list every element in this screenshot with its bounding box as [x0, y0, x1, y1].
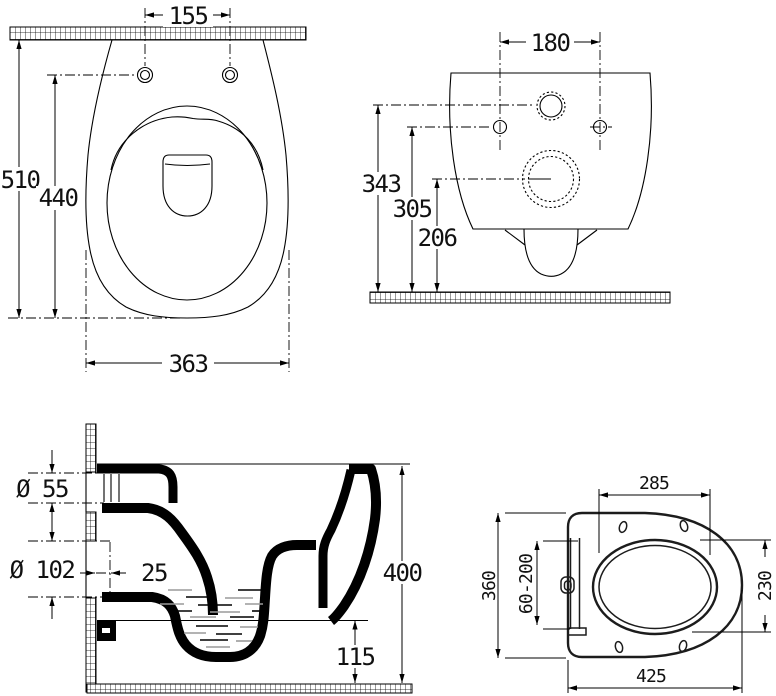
- seat-opening-inner: [599, 546, 711, 629]
- flush-rim-edge: [111, 117, 263, 170]
- dim-outlet-diameter: Ø 102: [10, 556, 75, 584]
- dim-rear-outlet-height: 206: [418, 224, 457, 252]
- dim-top-bowl-width: 363: [169, 350, 208, 378]
- dim-top-holes-to-front: 440: [39, 184, 78, 212]
- dim-seat-width: 360: [479, 571, 500, 601]
- ceramic-section: [97, 469, 376, 657]
- floor-hatch-section: [87, 684, 412, 693]
- dim-rim-height: 400: [383, 559, 422, 587]
- technical-drawing-page: 155 510 440 363: [0, 0, 776, 696]
- wall-bracket: [97, 621, 116, 641]
- drain-water-edge: [165, 164, 210, 166]
- side-section-view: Ø 55 Ø 102 25 400 115: [9, 424, 426, 693]
- dim-hinge-adjust-range: 60-200: [516, 554, 537, 614]
- dim-top-hole-spacing: 155: [169, 2, 208, 30]
- toilet-dimension-drawing: 155 510 440 363: [0, 0, 776, 696]
- seat-opening-outer: [593, 540, 717, 634]
- wall-hatch: [10, 27, 306, 40]
- dim-underside-height: 115: [336, 643, 375, 671]
- drain-outlet-circle: [523, 151, 580, 208]
- rear-view: 180 343 305 206: [357, 29, 670, 303]
- dim-rear-inlet-height: 343: [362, 170, 401, 198]
- outlet-spigot: [524, 229, 578, 276]
- mounting-holes: [138, 68, 238, 83]
- dim-rear-hole-spacing: 180: [531, 29, 570, 57]
- dim-rear-hole-height: 305: [393, 195, 432, 223]
- bowl-outline: [86, 40, 288, 318]
- inlet-pipe: [104, 474, 119, 502]
- dim-seat-opening-width: 230: [755, 571, 776, 601]
- dim-seat-opening-length: 285: [639, 473, 669, 494]
- dim-outlet-wall-offset: 25: [141, 559, 167, 587]
- water-inlet-circle: [537, 92, 565, 120]
- wall-hatch-vertical: [86, 424, 96, 692]
- top-view: 155 510 440 363: [0, 2, 306, 378]
- seat-view: 285 360 60-200 230 425: [479, 473, 776, 693]
- dim-top-overall-depth: 510: [1, 166, 40, 194]
- hinge-plate: [561, 538, 586, 635]
- dim-inlet-diameter: Ø 55: [16, 475, 68, 503]
- floor-hatch: [370, 292, 670, 303]
- dim-seat-length: 425: [636, 666, 666, 687]
